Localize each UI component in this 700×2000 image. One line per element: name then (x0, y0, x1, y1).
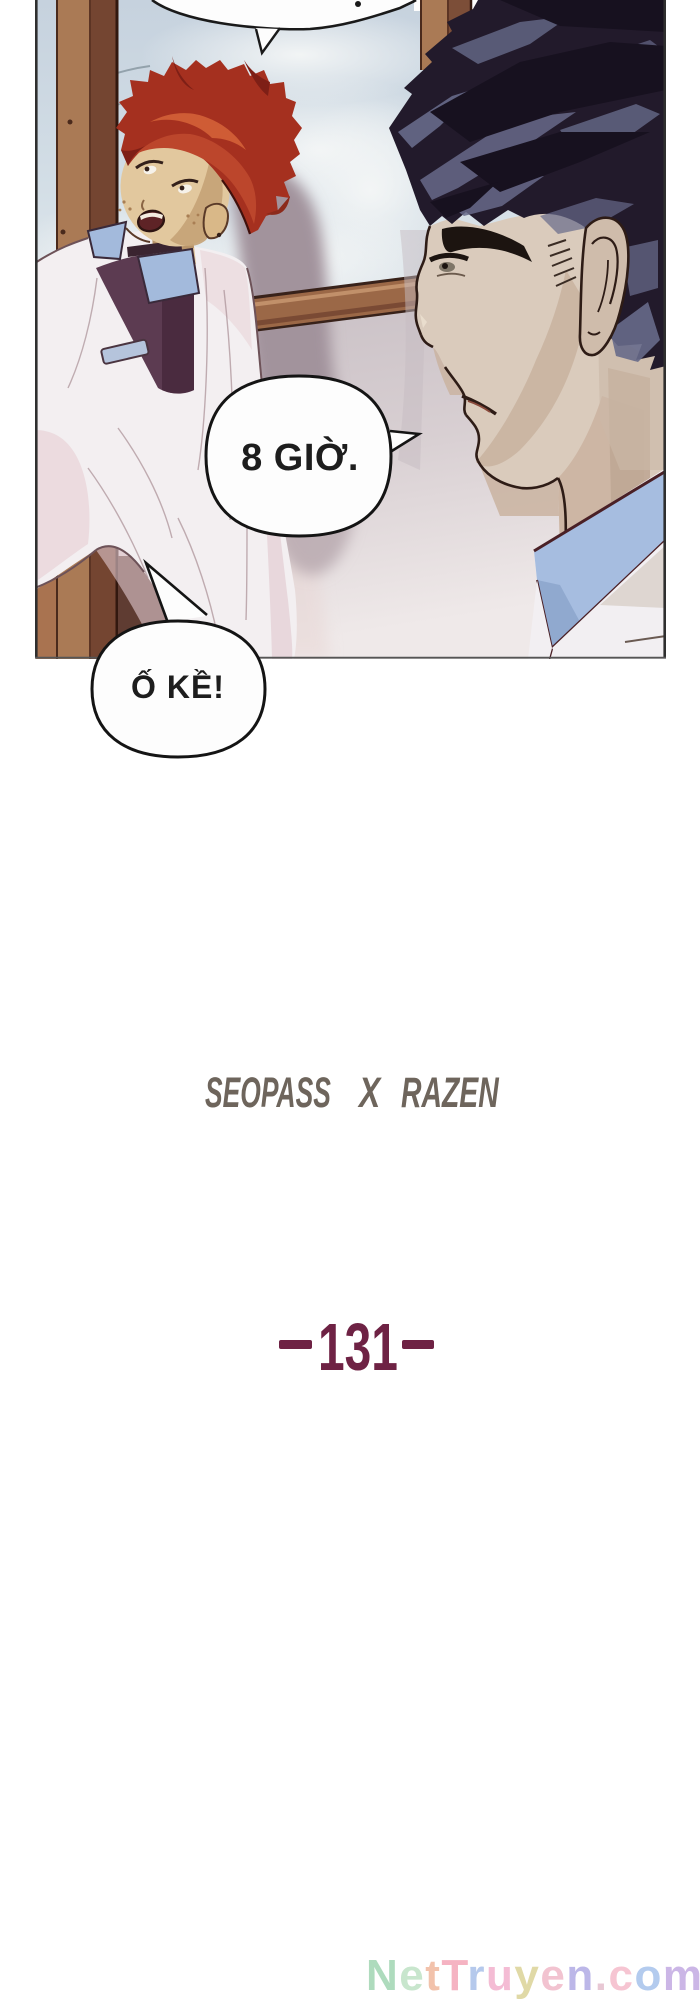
svg-text:131: 131 (318, 1310, 398, 1385)
svg-text:NetTruyen.com: NetTruyen.com (366, 1951, 700, 2000)
svg-text:8 GIỜ.: 8 GIỜ. (241, 435, 359, 479)
svg-text:RAZEN: RAZEN (401, 1068, 499, 1116)
svg-text:SEOPASS: SEOPASS (205, 1068, 331, 1116)
svg-text:Ố KỀ!: Ố KỀ! (131, 669, 225, 705)
svg-text:X: X (357, 1069, 382, 1117)
